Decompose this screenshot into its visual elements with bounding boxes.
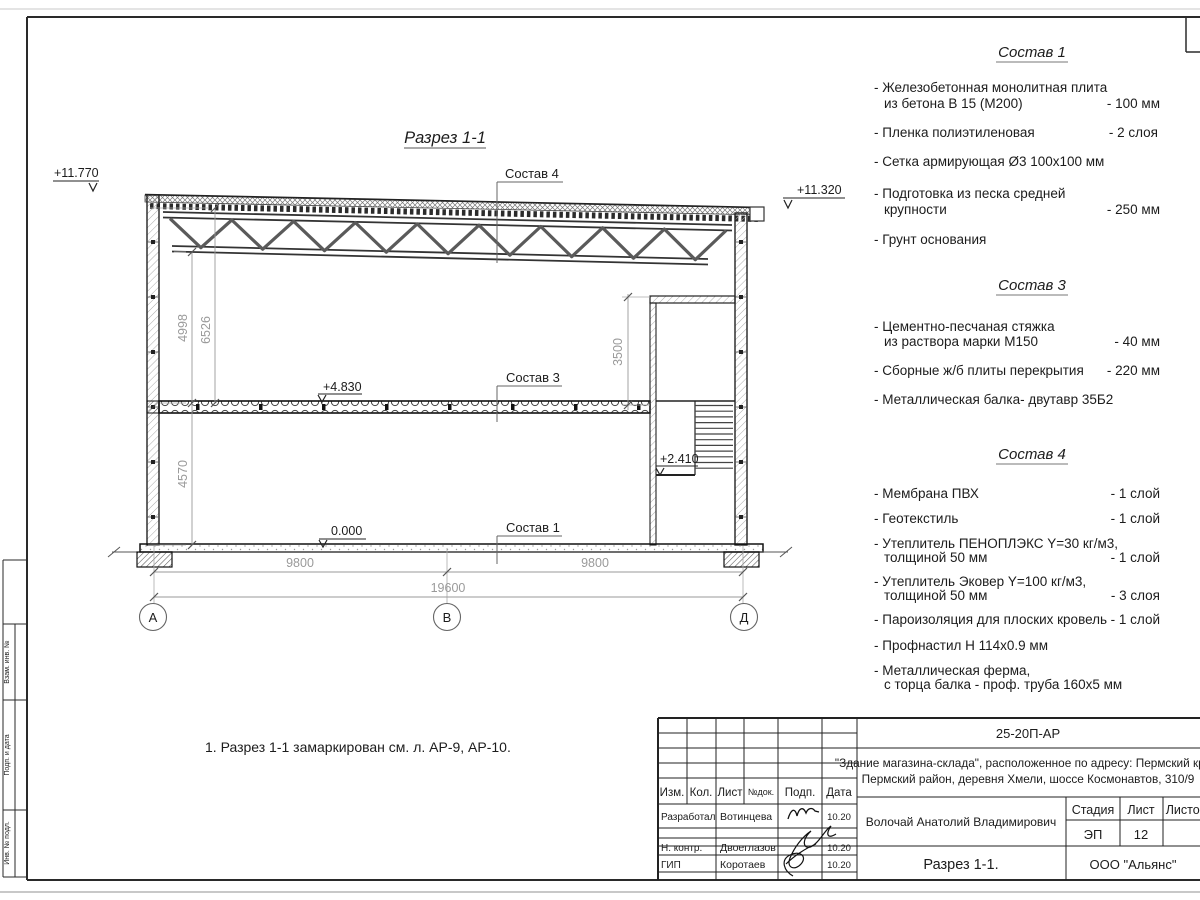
svg-text:Состав 4: Состав 4: [505, 166, 559, 181]
list-item-value: - 2 слоя: [1109, 125, 1158, 140]
stairwell-ceiling: [650, 296, 735, 303]
list-item-value: - 100 мм: [1107, 96, 1160, 111]
tb-row3-name: Коротаев: [720, 859, 766, 871]
list-item-text: - Утеплитель Эковер Y=100 кг/м3,: [874, 574, 1086, 589]
list-item-text: толщиной 50 мм: [884, 588, 987, 603]
composition-lists: Состав 1 - Железобетонная монолитная пли…: [874, 44, 1160, 692]
list-item-text: - Сетка армирующая Ø3 100х100 мм: [874, 154, 1104, 169]
dim-6526: 6526: [199, 316, 213, 344]
side-stamp-label: Инв. № подл.: [4, 821, 11, 865]
list4-title: Состав 4: [998, 446, 1066, 463]
tb-object-line2: Пермский район, деревня Хмели, шоссе Кос…: [862, 772, 1195, 786]
svg-text:+2.410: +2.410: [660, 452, 699, 466]
list-item-value: - 3 слоя: [1111, 588, 1160, 603]
svg-text:+11.770: +11.770: [54, 166, 99, 180]
side-stamp-label: Взам. инв. №: [4, 640, 11, 683]
dim-bay2: 9800: [581, 556, 609, 570]
list-item-value: - 1 слой: [1111, 550, 1160, 565]
callout-sostav-3: Состав 3: [497, 370, 562, 422]
axis-bubbles: А В Д: [140, 604, 758, 631]
list-item-text: - Грунт основания: [874, 232, 986, 247]
tb-sheet-title: Разрез 1-1.: [923, 857, 998, 873]
left-wall: [147, 195, 159, 545]
side-stamp: Взам. инв. № Подп. и дата Инв. № подл.: [3, 560, 27, 877]
list-item-text: из бетона В 15 (М200): [884, 96, 1023, 111]
view-title: Разрез 1-1: [404, 129, 486, 147]
list-item-text: крупности: [884, 202, 947, 217]
tb-col-kol: Кол.: [690, 787, 713, 799]
tb-company: ООО "Альянс": [1090, 857, 1177, 872]
svg-text:+11.320: +11.320: [797, 183, 842, 197]
tb-row2-date: 10.20: [827, 843, 851, 854]
stair-treads: [695, 406, 733, 469]
tb-row1-date: 10.20: [827, 812, 851, 823]
list-item-text: из раствора марки М150: [884, 334, 1038, 349]
stair-partition-wall: [650, 303, 656, 545]
tb-col-ndok: №док.: [748, 787, 774, 797]
elevation-roof-low: +11.320: [783, 183, 845, 208]
list-item-text: - Железобетонная монолитная плита: [874, 80, 1108, 95]
section-drawing-canvas: Взам. инв. № Подп. и дата Инв. № подл. Р…: [0, 0, 1200, 900]
list-item-text: - Подготовка из песка средней: [874, 186, 1065, 201]
list-item-text: с торца балка - проф. труба 160х5 мм: [884, 677, 1122, 692]
title-block: 25-20П-АР "Здание магазина-склада", расп…: [658, 718, 1200, 880]
tb-sheet-value: 12: [1134, 827, 1148, 842]
foundation-pad-left: [137, 552, 172, 567]
tb-doc-number: 25-20П-АР: [996, 726, 1060, 741]
dim-total: 19600: [431, 581, 466, 595]
svg-text:Состав 1: Состав 1: [506, 520, 560, 535]
roof-truss: [163, 212, 732, 265]
dim-bay1: 9800: [286, 556, 314, 570]
drawing-note: 1. Разрез 1-1 замаркирован см. л. АР-9, …: [205, 739, 511, 755]
tb-col-podp: Подп.: [785, 787, 816, 799]
list-item-text: - Металлическая ферма,: [874, 663, 1030, 678]
list3-title: Состав 3: [998, 277, 1066, 294]
tb-sheet-label: Лист: [1127, 803, 1154, 817]
axis-label-b: В: [443, 610, 452, 625]
list-item-text: - Пленка полиэтиленовая: [874, 125, 1035, 140]
tb-row1-role: Разработал: [661, 811, 716, 823]
tb-sheets-label: Листов: [1166, 803, 1200, 817]
stairwell: [650, 296, 735, 545]
corner-box: [1186, 17, 1200, 52]
dim-4570: 4570: [176, 460, 190, 488]
floor-slab: [108, 544, 792, 567]
elevation-mezzanine: +4.830: [318, 380, 362, 402]
list-item-text: - Металлическая балка- двутавр 35Б2: [874, 392, 1113, 407]
tb-chief-name: Волочай Анатолий Владимирович: [866, 815, 1057, 829]
tb-stage-label: Стадия: [1072, 803, 1115, 817]
signature-razrabotal: [788, 809, 819, 819]
axis-label-d: Д: [740, 610, 749, 625]
list-item-text: - Профнастил Н 114х0.9 мм: [874, 638, 1048, 653]
dim-4998: 4998: [176, 314, 190, 342]
list-item-value: - 40 мм: [1114, 334, 1160, 349]
eaves-end-cap: [750, 207, 764, 221]
tb-stage-value: ЭП: [1084, 827, 1103, 842]
list-item-text: - Цементно-песчаная стяжка: [874, 319, 1055, 334]
mezzanine-slab: [147, 401, 650, 413]
side-stamp-label: Подп. и дата: [4, 734, 11, 775]
list-item-text: - Сборные ж/б плиты перекрытия: [874, 363, 1084, 378]
list-item-text: толщиной 50 мм: [884, 550, 987, 565]
list1-title: Состав 1: [998, 44, 1066, 61]
tb-col-list: Лист: [718, 787, 744, 799]
list-item-value: - 1 слой: [1111, 511, 1160, 526]
foundation-pad-right: [724, 552, 759, 567]
callout-sostav-1: Состав 1: [497, 520, 562, 564]
elevation-roof-high: +11.770: [53, 166, 99, 191]
list-item-text: - Мембрана ПВХ: [874, 486, 979, 501]
list-item-value: - 1 слой: [1111, 612, 1160, 627]
list-item-text: - Пароизоляция для плоских кровель: [874, 612, 1107, 627]
tb-col-izm: Изм.: [660, 787, 685, 799]
svg-text:0.000: 0.000: [331, 524, 362, 538]
list-item-text: - Геотекстиль: [874, 511, 958, 526]
svg-text:Состав 3: Состав 3: [506, 370, 560, 385]
axis-label-a: А: [149, 610, 158, 625]
list-item-value: - 250 мм: [1107, 202, 1160, 217]
right-wall: [735, 213, 747, 545]
list-item-value: - 1 слой: [1111, 486, 1160, 501]
tb-row1-name: Вотинцева: [720, 811, 772, 823]
roof-package: [145, 195, 764, 222]
svg-text:+4.830: +4.830: [323, 380, 362, 394]
tb-row3-date: 10.20: [827, 860, 851, 871]
tb-row2-role: Н. контр.: [661, 843, 702, 854]
dim-3500: 3500: [611, 338, 625, 366]
list-item-value: - 220 мм: [1107, 363, 1160, 378]
list-item-text: - Утеплитель ПЕНОПЛЭКС Y=30 кг/м3,: [874, 536, 1118, 551]
tb-col-data: Дата: [826, 787, 852, 799]
elevation-landing: +2.410: [656, 452, 699, 475]
drawing-sheet: Взам. инв. № Подп. и дата Инв. № подл. Р…: [0, 0, 1200, 900]
tb-row3-role: ГИП: [661, 860, 681, 871]
tb-object-line1: "Здание магазина-склада", расположенное …: [835, 756, 1200, 770]
tb-row2-name: Двоеглазов: [720, 842, 776, 854]
bottom-dimensions: 9800 9800 19600 А В Д: [140, 546, 758, 631]
wall-panel-joints: [147, 240, 747, 519]
